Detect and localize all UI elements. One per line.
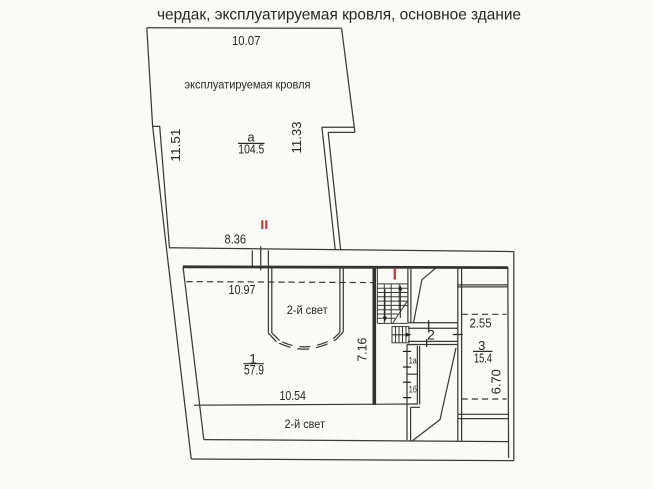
svg-text:эксплуатируемая кровля: эксплуатируемая кровля [185,78,311,92]
svg-text:2-й свет: 2-й свет [284,417,325,431]
svg-text:10.54: 10.54 [279,388,306,403]
svg-text:6.70: 6.70 [489,369,504,394]
svg-text:11.51: 11.51 [168,129,183,162]
svg-text:15.4: 15.4 [474,351,492,366]
svg-text:чердак, эксплуатируемая кровля: чердак, эксплуатируемая кровля, основное… [157,7,521,24]
svg-text:11.33: 11.33 [289,122,304,154]
svg-text:10.97: 10.97 [229,282,256,297]
svg-text:10.07: 10.07 [232,33,261,48]
svg-text:57.9: 57.9 [244,362,264,378]
svg-text:8.36: 8.36 [225,232,247,247]
svg-text:104.5: 104.5 [238,142,264,157]
svg-text:1а: 1а [409,356,418,367]
svg-text:2.55: 2.55 [470,315,492,330]
svg-text:1б: 1б [409,385,417,396]
svg-text:7.16: 7.16 [354,338,369,362]
svg-text:2-й свет: 2-й свет [287,303,328,317]
